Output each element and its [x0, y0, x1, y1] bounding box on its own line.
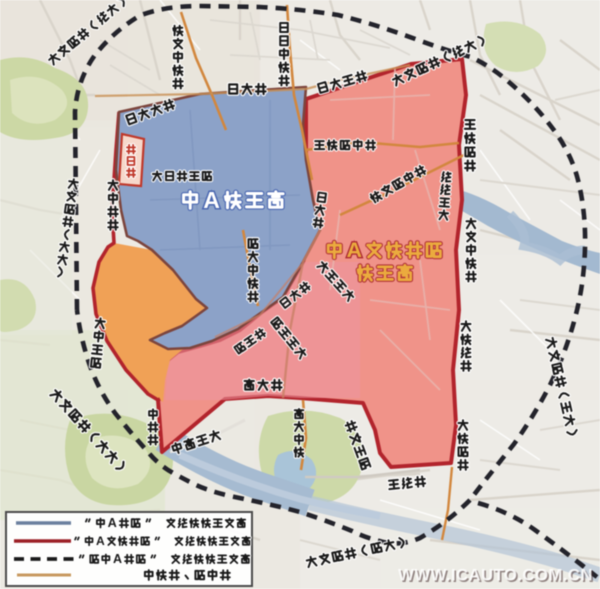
svg-text:WWW.ICAUTO.COM.CN: WWW.ICAUTO.COM.CN — [398, 566, 593, 585]
svg-text:A: A — [96, 534, 105, 548]
svg-text:A: A — [113, 552, 122, 566]
svg-text:A: A — [203, 187, 220, 213]
svg-text:A: A — [108, 516, 117, 530]
svg-text:A: A — [346, 238, 362, 262]
